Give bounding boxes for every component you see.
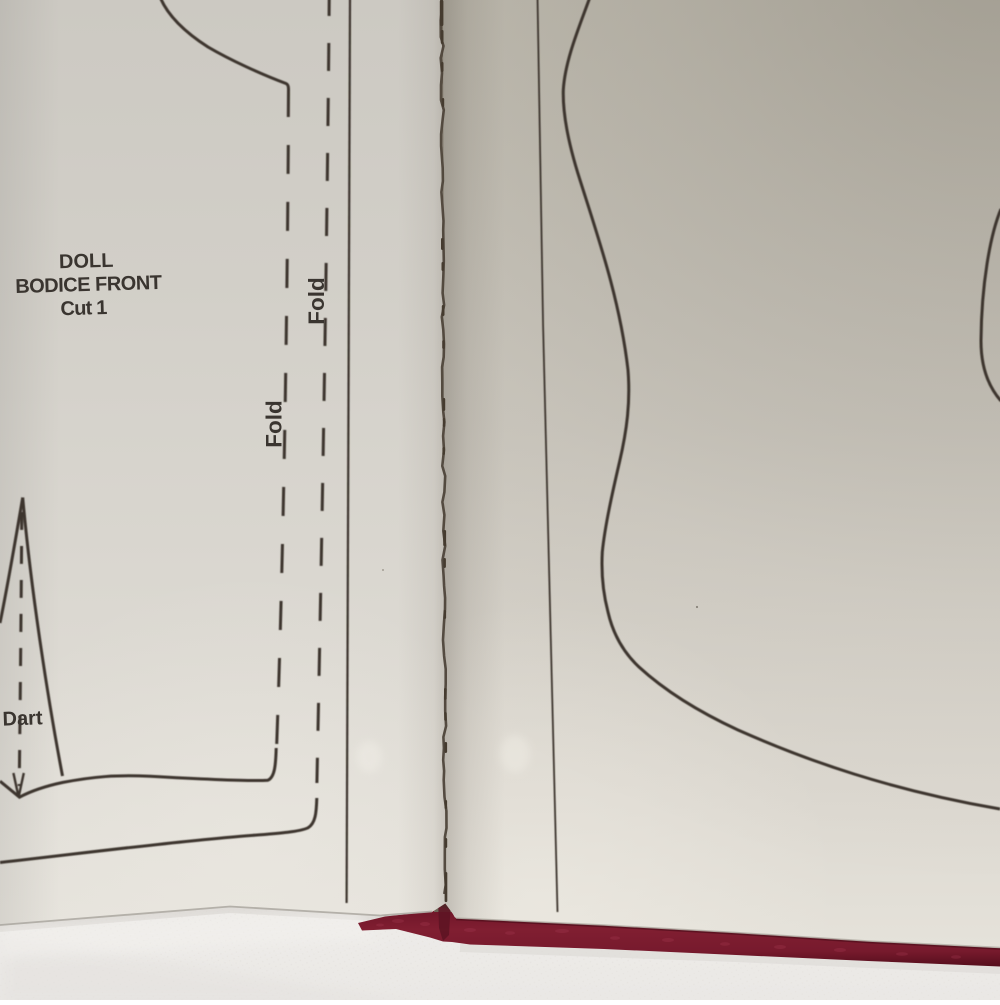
svg-text:Fold: Fold (304, 277, 329, 324)
svg-text:DOLL: DOLL (59, 250, 114, 274)
svg-text:Dart: Dart (2, 707, 43, 730)
svg-text:Fold: Fold (262, 400, 287, 447)
svg-text:Cut 1: Cut 1 (60, 297, 107, 320)
svg-text:BODICE FRONT: BODICE FRONT (15, 272, 162, 298)
